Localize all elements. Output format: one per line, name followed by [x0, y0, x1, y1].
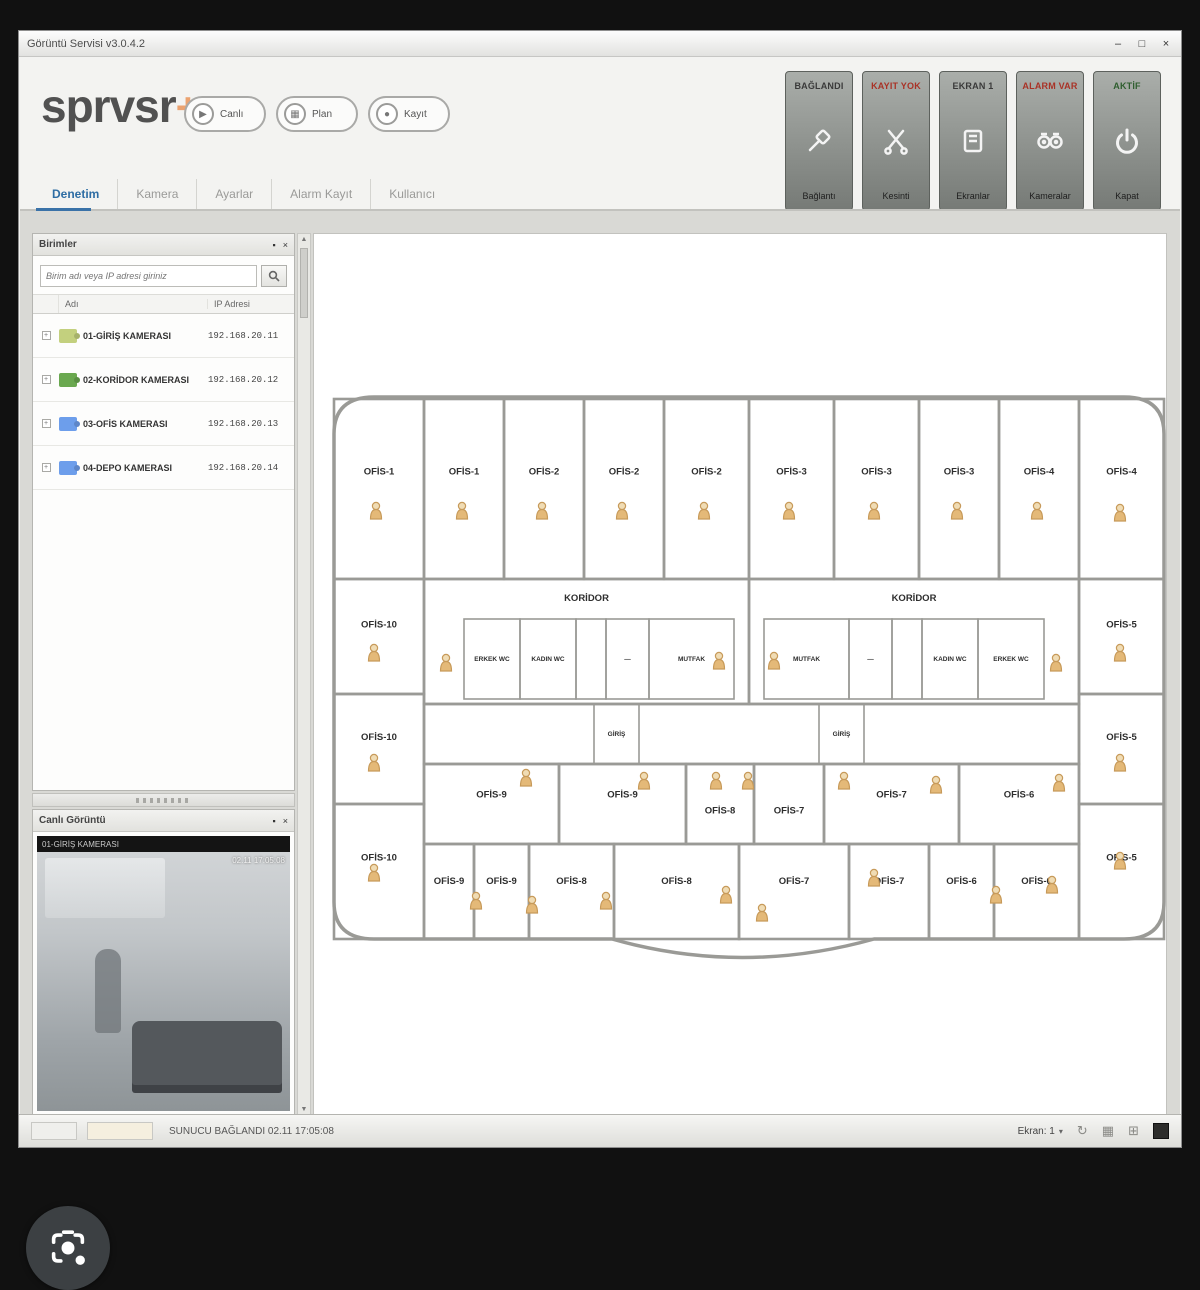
device-ip: 192.168.20.13: [208, 419, 294, 429]
room-label: OFİS-5: [1106, 619, 1137, 630]
room-label: OFİS-6: [1021, 876, 1052, 887]
plan-room: [664, 399, 749, 579]
room-label: OFİS-4: [1106, 467, 1137, 478]
plan-room: [919, 399, 999, 579]
device-row[interactable]: +03-OFİS KAMERASI192.168.20.13: [33, 402, 294, 446]
room-label: GİRİŞ: [833, 730, 851, 738]
camera-icon[interactable]: [769, 652, 780, 669]
camera-icon[interactable]: [839, 772, 850, 789]
plan-room: [334, 579, 424, 694]
room-label: ERKEK WC: [993, 656, 1029, 663]
camera-icon[interactable]: [369, 864, 380, 881]
video-panel-header: Canlı Görüntü ▪ ×: [33, 810, 294, 832]
room-label: OFİS-8: [661, 876, 692, 887]
tile-status-label: EKRAN 1: [953, 81, 994, 91]
camera-icon[interactable]: [601, 892, 612, 909]
camera-lens-icon: [45, 1225, 91, 1271]
camera-icon[interactable]: [617, 502, 628, 519]
plan-room: [1079, 804, 1164, 939]
close-icon[interactable]: ×: [283, 240, 288, 250]
title-bar: Görüntü Servisi v3.0.4.2 – □ ×: [19, 31, 1181, 57]
room-label: OFİS-7: [876, 790, 907, 801]
window-title: Görüntü Servisi v3.0.4.2: [27, 38, 145, 50]
column-name: Adı: [59, 299, 208, 309]
camera-icon[interactable]: [1047, 876, 1058, 893]
tile-status-label: ALARM VAR: [1022, 81, 1077, 91]
quick-plan-label: Plan: [312, 109, 332, 120]
device-name: 04-DEPO KAMERASI: [83, 463, 172, 473]
camera-icon[interactable]: [537, 502, 548, 519]
scroll-down-icon[interactable]: ▼: [298, 1106, 310, 1113]
device-row[interactable]: +04-DEPO KAMERASI192.168.20.14: [33, 446, 294, 490]
video-camera-name: 01-GİRİŞ KAMERASI: [42, 840, 119, 849]
tab-kullanici[interactable]: Kullanıcı: [370, 179, 453, 209]
plan-room: [504, 399, 584, 579]
video-title-bar: 01-GİRİŞ KAMERASI: [37, 836, 290, 852]
plan-room: [334, 694, 424, 804]
room-label: OFİS-7: [774, 806, 805, 817]
video-timestamp: 02.11 17:05:08: [232, 856, 285, 865]
camera-icon[interactable]: [743, 772, 754, 789]
camera-icon[interactable]: [639, 772, 650, 789]
camera-icon[interactable]: [757, 904, 768, 921]
video-panel: Canlı Görüntü ▪ × 01-GİRİŞ KAMERASI 02.1…: [32, 809, 295, 1116]
device-ip: 192.168.20.11: [208, 331, 294, 341]
camera-icon[interactable]: [1054, 774, 1065, 791]
room-label: OFİS-3: [776, 467, 807, 478]
device-name: 02-KORİDOR KAMERASI: [83, 375, 189, 385]
plan-room: [576, 619, 606, 699]
device-name: 03-OFİS KAMERASI: [83, 419, 168, 429]
search-icon: [268, 270, 280, 282]
video-window-glow: [45, 858, 165, 918]
status-segment: [87, 1122, 153, 1140]
search-input[interactable]: [40, 265, 257, 287]
device-panel-header: Birimler ▪ ×: [33, 234, 294, 256]
lens-camera-button[interactable]: [26, 1206, 110, 1290]
chevron-down-icon: ▾: [1059, 1127, 1063, 1136]
plan-room: [424, 399, 504, 579]
room-label: OFİS-9: [476, 790, 507, 801]
plan-room: [749, 399, 834, 579]
app-window: Görüntü Servisi v3.0.4.2 – □ × sprvsr+ ▶…: [18, 30, 1182, 1148]
tab-alarm-kayit[interactable]: Alarm Kayıt: [271, 179, 370, 209]
camera-icon[interactable]: [369, 754, 380, 771]
tab-ayarlar[interactable]: Ayarlar: [196, 179, 271, 209]
status-message: SUNUCU BAĞLANDI 02.11 17:05:08: [169, 1126, 334, 1137]
screen-select-label: Ekran: 1: [1018, 1126, 1055, 1137]
tree-gutter: [33, 295, 59, 313]
room-label: OFİS-10: [361, 853, 397, 864]
room-label: OFİS-7: [779, 876, 810, 887]
room-label: ERKEK WC: [474, 656, 510, 663]
room-label: OFİS-9: [434, 876, 465, 887]
plan-room: [739, 844, 849, 939]
room-label: MUTFAK: [793, 656, 820, 663]
plan-room: [999, 399, 1079, 579]
camera-icon[interactable]: [527, 896, 538, 913]
expander-icon[interactable]: +: [42, 375, 51, 384]
plan-room: [1079, 694, 1164, 804]
app-logo: sprvsr+: [41, 79, 199, 133]
plan-icon: ▦: [284, 103, 306, 125]
room-label: MUTFAK: [678, 656, 705, 663]
camera-icon[interactable]: [721, 886, 732, 903]
room-label: —: [624, 656, 631, 663]
expander-icon[interactable]: +: [42, 419, 51, 428]
tile-status-label: KAYIT YOK: [871, 81, 921, 91]
room-label: GİRİŞ: [608, 730, 626, 738]
camera-icon[interactable]: [1115, 504, 1126, 521]
floorplan-svg: OFİS-1OFİS-1OFİS-2OFİS-2OFİS-2OFİS-3OFİS…: [314, 234, 1168, 1117]
plan-room: [559, 764, 686, 844]
video-person-silhouette: [95, 949, 121, 1033]
tab-bar: Denetim Kamera Ayarlar Alarm Kayıt Kulla…: [20, 167, 1180, 211]
tab-kamera[interactable]: Kamera: [117, 179, 196, 209]
minimize-button[interactable]: –: [1111, 38, 1125, 50]
column-ip: IP Adresi: [208, 299, 294, 309]
camera-icon[interactable]: [1115, 754, 1126, 771]
room-label: KORİDOR: [892, 593, 937, 604]
pin-icon[interactable]: ▪: [273, 240, 276, 250]
video-panel-title: Canlı Görüntü: [39, 815, 106, 826]
room-label: OFİS-2: [609, 467, 640, 478]
fullscreen-button[interactable]: [1153, 1123, 1169, 1139]
splitter-handle-icon: [136, 798, 192, 803]
maximize-button[interactable]: □: [1135, 38, 1149, 50]
plan-room: [849, 844, 929, 939]
device-camera-icon: [59, 329, 77, 343]
status-bar: SUNUCU BAĞLANDI 02.11 17:05:08 Ekran: 1 …: [19, 1114, 1181, 1147]
room-label: OFİS-1: [449, 467, 480, 478]
quick-record-button[interactable]: ● Kayıt: [368, 96, 450, 132]
device-row[interactable]: +01-GİRİŞ KAMERASI192.168.20.11: [33, 314, 294, 358]
quick-toolbar: ▶ Canlı ▦ Plan ● Kayıt: [184, 96, 450, 132]
status-segment: [31, 1122, 77, 1140]
room-label: OFİS-1: [364, 467, 395, 478]
plan-room: [334, 804, 424, 939]
camera-icon[interactable]: [711, 772, 722, 789]
camera-icon[interactable]: [952, 502, 963, 519]
floorplan-canvas: OFİS-1OFİS-1OFİS-2OFİS-2OFİS-2OFİS-3OFİS…: [313, 233, 1167, 1116]
scrollbar-thumb[interactable]: [300, 248, 308, 318]
close-button[interactable]: ×: [1159, 38, 1173, 50]
room-label: OFİS-6: [1004, 790, 1035, 801]
plan-room: [1079, 579, 1164, 694]
plan-room: [834, 399, 919, 579]
grid-view-icon[interactable]: ▦: [1102, 1123, 1114, 1139]
plan-room: [424, 764, 559, 844]
plan-room: [929, 844, 994, 939]
room-label: OFİS-6: [946, 876, 977, 887]
camera-icon[interactable]: [869, 502, 880, 519]
room-label: OFİS-5: [1106, 732, 1137, 743]
device-row[interactable]: +02-KORİDOR KAMERASI192.168.20.12: [33, 358, 294, 402]
camera-icon[interactable]: [369, 644, 380, 661]
video-couch: [132, 1021, 282, 1085]
plan-room: [584, 399, 664, 579]
tile-status-label: BAĞLANDI: [794, 81, 843, 91]
tile-status-label: AKTİF: [1113, 81, 1141, 91]
quick-live-label: Canlı: [220, 109, 243, 120]
plan-room: [424, 704, 1079, 764]
expander-icon[interactable]: +: [42, 331, 51, 340]
tab-denetim[interactable]: Denetim: [34, 179, 117, 209]
camera-icon[interactable]: [521, 769, 532, 786]
room-label: OFİS-2: [529, 467, 560, 478]
device-table-header: Adı IP Adresi: [33, 294, 294, 314]
camera-icon[interactable]: [1115, 852, 1126, 869]
device-panel-title: Birimler: [39, 239, 77, 250]
plan-room: [529, 844, 614, 939]
device-camera-icon: [59, 461, 77, 475]
room-label: OFİS-10: [361, 619, 397, 630]
camera-icon[interactable]: [441, 654, 452, 671]
device-name: 01-GİRİŞ KAMERASI: [83, 331, 171, 341]
room-label: OFİS-2: [691, 467, 722, 478]
screen-select-dropdown[interactable]: Ekran: 1 ▾: [1018, 1126, 1063, 1137]
room-label: OFİS-9: [607, 790, 638, 801]
refresh-icon[interactable]: ↻: [1077, 1123, 1088, 1139]
camera-icon[interactable]: [869, 869, 880, 886]
plan-room: [754, 764, 824, 844]
device-ip: 192.168.20.14: [208, 463, 294, 473]
live-icon: ▶: [192, 103, 214, 125]
plan-room: [1079, 399, 1164, 579]
quick-live-button[interactable]: ▶ Canlı: [184, 96, 266, 132]
room-label: KADIN WC: [531, 656, 565, 663]
pin-icon[interactable]: ▪: [273, 816, 276, 826]
plan-room: [892, 619, 922, 699]
plan-room: [614, 844, 739, 939]
device-table-body: +01-GİRİŞ KAMERASI192.168.20.11+02-KORİD…: [33, 314, 294, 490]
live-video-view[interactable]: 01-GİRİŞ KAMERASI 02.11 17:05:08: [37, 836, 290, 1111]
room-label: OFİS-9: [486, 876, 517, 887]
logo-text: sprvsr: [41, 80, 176, 132]
quick-record-label: Kayıt: [404, 109, 427, 120]
vertical-scrollbar[interactable]: ▲ ▼: [297, 233, 311, 1116]
camera-icon[interactable]: [457, 502, 468, 519]
camera-icon[interactable]: [931, 776, 942, 793]
plan-room: [474, 844, 529, 939]
room-label: OFİS-8: [556, 876, 587, 887]
plan-room: [334, 399, 424, 579]
camera-icon[interactable]: [784, 502, 795, 519]
camera-icon[interactable]: [699, 502, 710, 519]
room-label: OFİS-8: [705, 806, 736, 817]
camera-icon[interactable]: [471, 892, 482, 909]
camera-icon[interactable]: [714, 652, 725, 669]
device-camera-icon: [59, 373, 77, 387]
room-label: KADIN WC: [933, 656, 967, 663]
expander-icon[interactable]: +: [42, 463, 51, 472]
room-label: OFİS-3: [944, 467, 975, 478]
device-camera-icon: [59, 417, 77, 431]
search-button[interactable]: [261, 265, 287, 287]
record-icon: ●: [376, 103, 398, 125]
device-ip: 192.168.20.12: [208, 375, 294, 385]
plan-room: [424, 844, 474, 939]
quick-plan-button[interactable]: ▦ Plan: [276, 96, 358, 132]
camera-icon[interactable]: [991, 886, 1002, 903]
camera-icon[interactable]: [1051, 654, 1062, 671]
panel-splitter[interactable]: [32, 793, 295, 807]
camera-icon[interactable]: [371, 502, 382, 519]
room-label: OFİS-10: [361, 732, 397, 743]
room-label: KORİDOR: [564, 593, 609, 604]
room-label: OFİS-4: [1024, 467, 1055, 478]
device-panel: Birimler ▪ × Adı IP Adresi +01-GİR: [32, 233, 295, 791]
room-label: —: [867, 656, 874, 663]
scroll-up-icon[interactable]: ▲: [298, 236, 310, 243]
plan-room: [994, 844, 1079, 939]
camera-icon[interactable]: [1032, 502, 1043, 519]
main-area: Birimler ▪ × Adı IP Adresi +01-GİR: [20, 211, 1180, 1114]
close-icon[interactable]: ×: [283, 816, 288, 826]
camera-icon[interactable]: [1115, 644, 1126, 661]
room-label: OFİS-3: [861, 467, 892, 478]
add-screen-icon[interactable]: ⊞: [1128, 1123, 1139, 1139]
